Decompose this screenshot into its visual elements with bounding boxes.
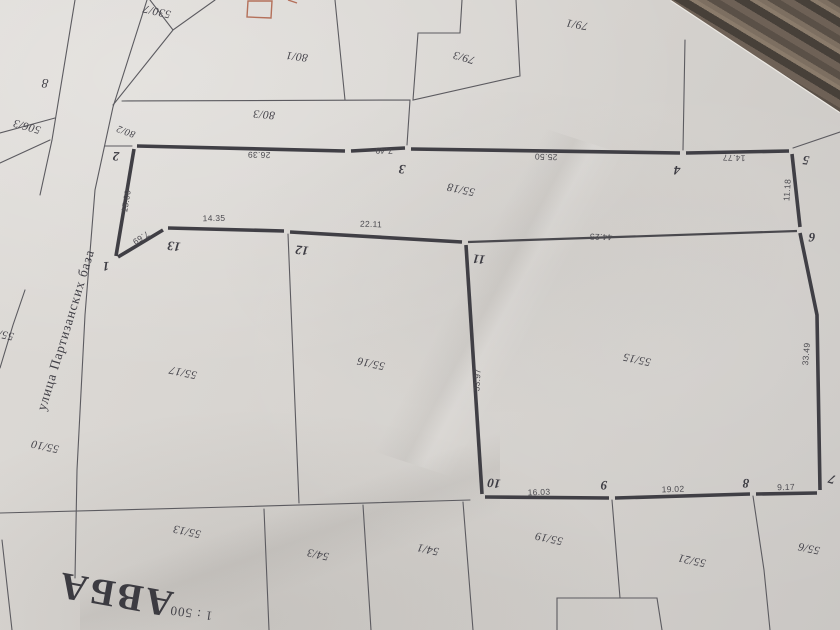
survey-point-12: 12 <box>295 241 310 258</box>
parcel-80-1-divider <box>335 0 345 100</box>
divider-54-3-54-1 <box>363 505 371 630</box>
survey-point-4: 4 <box>673 162 680 178</box>
boundary-8-9 <box>615 494 750 498</box>
dimension-3a-3: 7.49 <box>375 146 393 156</box>
parcel-79-3-outline <box>413 0 520 100</box>
dimension-3-4: 25.50 <box>534 152 557 163</box>
divider-54-1-55-19 <box>463 502 473 630</box>
survey-point-6: 6 <box>808 229 815 245</box>
parcel-80-3-north-line <box>122 100 410 145</box>
boundary-5-6 <box>792 154 800 227</box>
survey-point-13: 13 <box>167 237 182 254</box>
dimension-11-10: 33.97 <box>471 368 482 391</box>
divider-55-19-55-21 <box>612 500 620 598</box>
boundary-9-10 <box>485 497 609 498</box>
survey-point-10: 10 <box>487 474 502 491</box>
dimension-11-6: 44.25 <box>589 232 612 243</box>
dimension-12-11: 22.11 <box>360 219 382 230</box>
road-line-sw <box>0 140 50 163</box>
divider-55-21-55-6 <box>753 496 770 630</box>
building-outline <box>557 598 662 630</box>
plan-lines <box>0 0 840 630</box>
survey-point-2: 2 <box>112 148 119 164</box>
internal-line-11-6 <box>468 231 797 242</box>
red-building-outline <box>247 1 272 18</box>
divider-55-17-55-16 <box>288 234 299 503</box>
south-block-line <box>0 500 470 513</box>
cadastral-plan-photo: 1 2 3 4 5 6 7 8 9 10 11 12 13 15.00 7.69… <box>0 0 840 630</box>
parcel-80-3: 80/3 <box>252 107 275 121</box>
dimension-10-9: 16.03 <box>527 487 550 498</box>
boundary-2-3a <box>137 146 345 151</box>
parcel-80-1: 80/1 <box>285 49 308 64</box>
red-mark <box>288 0 297 3</box>
dimension-4-5: 14.77 <box>722 153 745 164</box>
survey-point-3: 3 <box>398 161 406 178</box>
boundary-7-8 <box>756 493 817 494</box>
road-line-west <box>40 0 75 195</box>
boundary-beyond-5 <box>793 132 840 148</box>
survey-point-9: 9 <box>600 477 607 493</box>
parcel-8: 8 <box>41 75 49 92</box>
boundary-12-13 <box>168 228 284 231</box>
dimension-9-8: 19.02 <box>661 484 684 495</box>
divider-55-13-54-3 <box>264 509 269 630</box>
survey-point-11: 11 <box>472 250 486 267</box>
dimension-8-7: 9.17 <box>777 482 795 493</box>
boundary-11-12 <box>290 232 462 242</box>
dimension-5-6: 11.18 <box>781 179 793 202</box>
dimension-13-12: 14.35 <box>203 213 226 223</box>
dimension-2-3: 26.39 <box>248 150 271 160</box>
dimension-7-6: 33.49 <box>800 342 812 366</box>
sw-corner-line <box>2 540 12 630</box>
point-4-riser-line <box>683 40 685 150</box>
survey-point-1: 1 <box>102 258 109 274</box>
survey-point-8: 8 <box>742 475 749 491</box>
